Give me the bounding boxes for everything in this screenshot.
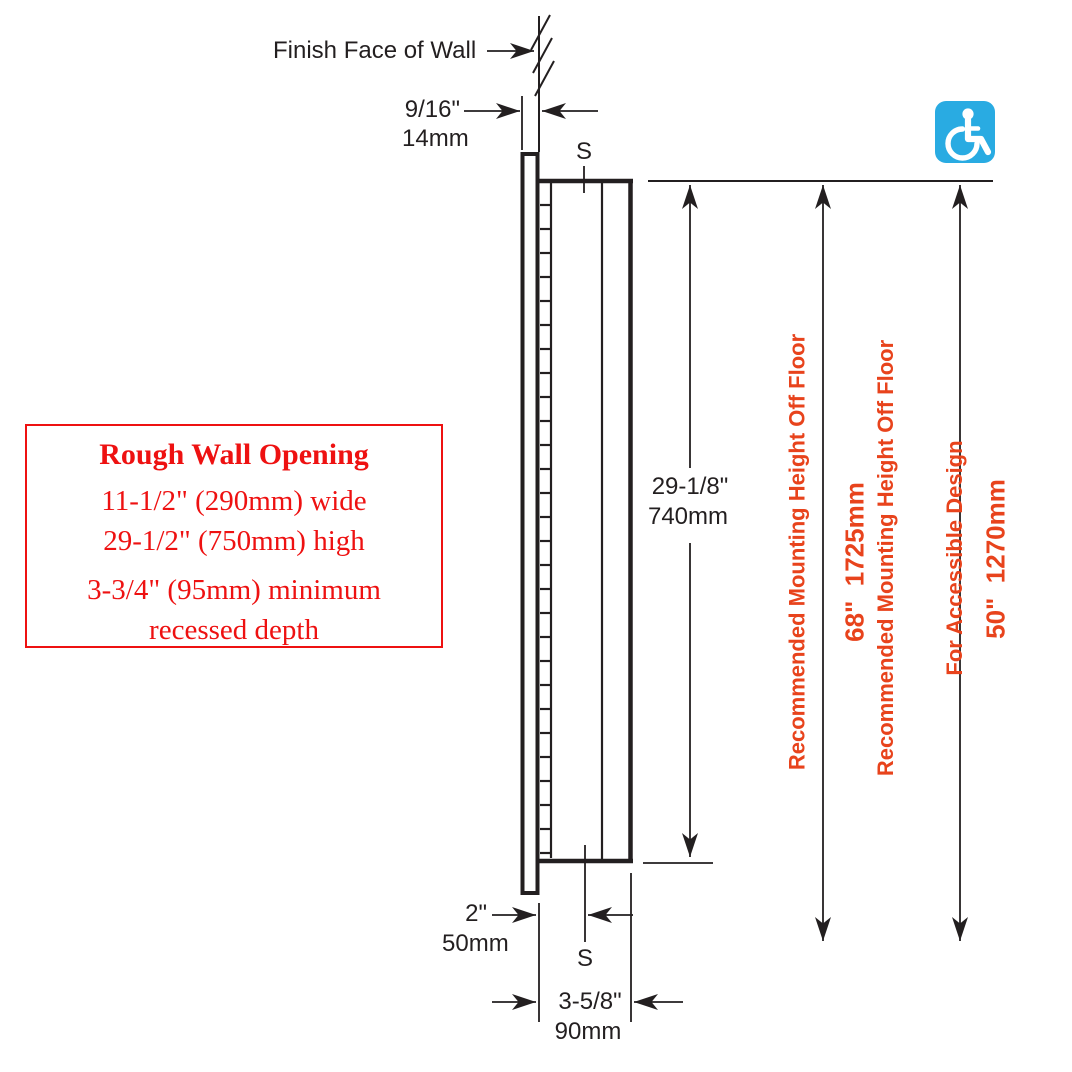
dim-358-mm: 90mm xyxy=(555,1019,622,1046)
accessible-label-line2: For Accessible Design xyxy=(943,340,966,776)
wheelchair-accessibility-icon xyxy=(935,101,995,163)
rough-opening-height: 29-1/2" (750mm) high xyxy=(27,521,441,561)
accessible-mounting-height-value: 50" 1270mm xyxy=(981,479,1012,639)
installation-diagram: Finish Face of Wall 9/16" 14mm S 29-1/8"… xyxy=(0,0,1072,1072)
mounting-flange xyxy=(523,154,538,893)
wall-hatch-mark xyxy=(533,38,552,73)
dim-29-18-inch: 29-1/8" xyxy=(652,474,729,501)
rough-opening-width: 11-1/2" (290mm) wide xyxy=(27,481,441,521)
finish-face-of-wall-label: Finish Face of Wall xyxy=(273,38,476,65)
accessible-label-line1: Recommended Mounting Height Off Floor xyxy=(874,340,897,776)
wall-hatch-mark xyxy=(531,15,550,50)
rough-opening-depth-line2: recessed depth xyxy=(27,610,441,650)
dim-9-16-inch: 9/16" xyxy=(398,97,460,124)
section-marker-bottom: S xyxy=(577,946,593,973)
rough-wall-opening-box: Rough Wall Opening 11-1/2" (290mm) wide … xyxy=(25,424,443,648)
dim-358-inch: 3-5/8" xyxy=(558,989,621,1016)
dim-2-mm: 50mm xyxy=(442,931,509,958)
dim-29-18-mm: 740mm xyxy=(648,504,728,531)
dim-2-inch: 2" xyxy=(440,901,487,928)
section-hatch-rungs xyxy=(540,205,551,853)
section-marker-top: S xyxy=(576,139,592,166)
dim-9-16-mm: 14mm xyxy=(402,126,469,153)
rough-opening-depth-line1: 3-3/4" (95mm) minimum xyxy=(27,570,441,610)
standard-mounting-height-label: Recommended Mounting Height Off Floor xyxy=(786,334,809,770)
wall-hatch-mark xyxy=(535,61,554,96)
rough-wall-opening-title: Rough Wall Opening xyxy=(27,438,441,471)
